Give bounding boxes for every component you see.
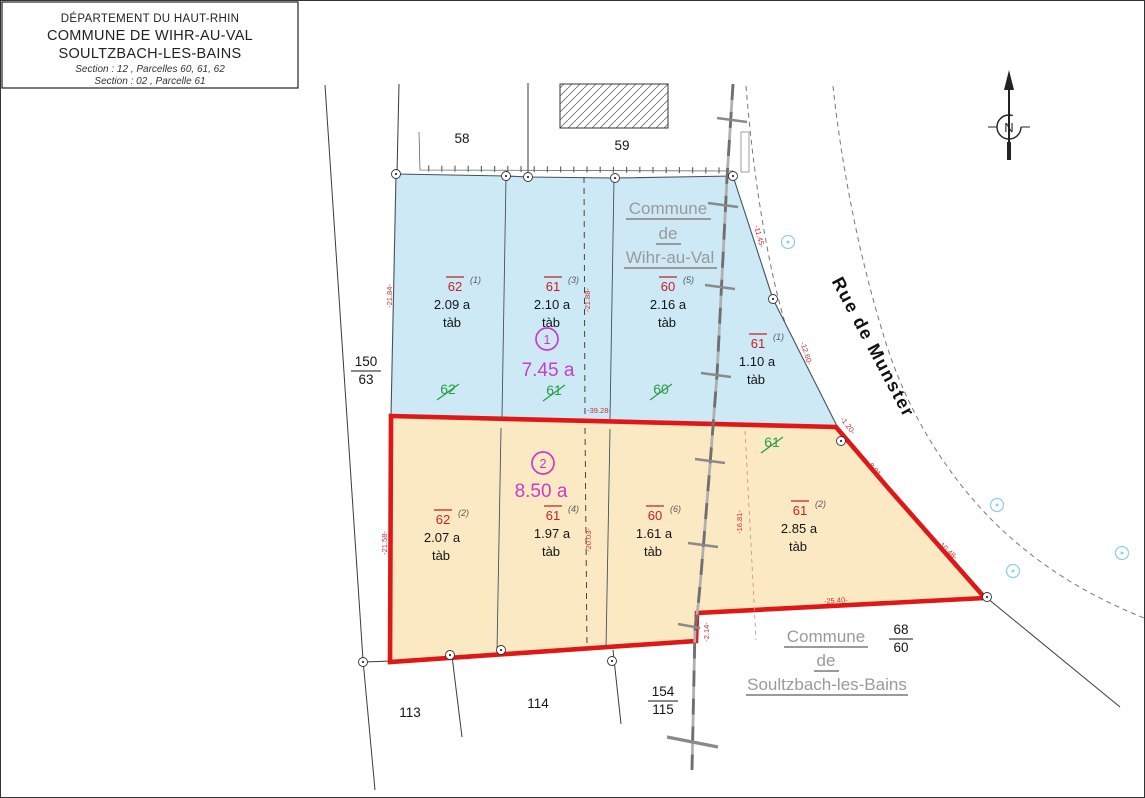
parcel-area: 2.16 a bbox=[650, 297, 687, 312]
measurement: -25.40- bbox=[824, 595, 849, 606]
survey-point bbox=[502, 172, 511, 181]
survey-point bbox=[524, 173, 533, 182]
soultzbach-line2: de bbox=[817, 651, 836, 670]
parcel-note: tàb bbox=[443, 315, 461, 330]
cadastral-map: N DÉPARTEMENT DU HAUT-RHIN COMMUNE DE WI… bbox=[0, 0, 1145, 798]
zone2-number: 2 bbox=[539, 456, 546, 471]
survey-point bbox=[837, 437, 846, 446]
fraction-top: 68 bbox=[893, 622, 908, 637]
parcel-note: tàb bbox=[644, 544, 662, 559]
parcel-number: 62 bbox=[436, 512, 450, 527]
parcel-number: 61 bbox=[793, 503, 807, 518]
parcel-exponent: (2) bbox=[815, 499, 826, 509]
zone2-area: 8.50 a bbox=[515, 481, 568, 502]
parcel-note: tàb bbox=[789, 539, 807, 554]
measurement: -2.14- bbox=[702, 622, 711, 642]
fraction-bottom: 115 bbox=[652, 702, 674, 717]
fraction-bottom: 63 bbox=[358, 372, 373, 387]
fraction-bottom: 60 bbox=[893, 640, 908, 655]
soultzbach-line3: Soultzbach-les-Bains bbox=[747, 675, 907, 694]
survey-point bbox=[392, 170, 401, 179]
parcel-exponent: (1) bbox=[773, 332, 784, 342]
measurement: -21.88- bbox=[583, 288, 592, 312]
old-number-61b: 61 bbox=[764, 434, 780, 450]
adjacent-parcel-59: 59 bbox=[614, 138, 629, 153]
north-label: N bbox=[1004, 120, 1013, 135]
parcel-exponent: (2) bbox=[458, 508, 469, 518]
wihr-line2: de bbox=[659, 224, 678, 243]
small-enclosure bbox=[741, 132, 749, 172]
parcel-area: 2.85 a bbox=[781, 521, 818, 536]
title-commune-2: SOULTZBACH-LES-BAINS bbox=[59, 46, 242, 62]
adjacent-parcel-113: 113 bbox=[399, 705, 421, 720]
adjacent-parcel-58: 58 bbox=[454, 131, 469, 146]
parcel-exponent: (4) bbox=[568, 504, 579, 514]
title-block: DÉPARTEMENT DU HAUT-RHIN COMMUNE DE WIHR… bbox=[2, 2, 298, 88]
parcel-area: 1.61 a bbox=[636, 526, 673, 541]
parcel-note: tàb bbox=[432, 548, 450, 563]
survey-point bbox=[497, 646, 506, 655]
parcel-exponent: (3) bbox=[568, 275, 579, 285]
parcel-number: 60 bbox=[661, 279, 675, 294]
parcel-number: 61 bbox=[546, 508, 560, 523]
parcel-area: 1.10 a bbox=[739, 354, 776, 369]
wihr-line1: Commune bbox=[629, 199, 707, 218]
survey-point bbox=[359, 658, 368, 667]
measurement: -16.81- bbox=[735, 510, 744, 534]
parcel-area: 2.07 a bbox=[424, 530, 461, 545]
parcel-exponent: (5) bbox=[683, 275, 694, 285]
cadastral-plan-page: N DÉPARTEMENT DU HAUT-RHIN COMMUNE DE WI… bbox=[0, 0, 1145, 798]
measurement: -21.84- bbox=[385, 284, 394, 308]
title-department: DÉPARTEMENT DU HAUT-RHIN bbox=[61, 12, 239, 25]
parcel-exponent: (1) bbox=[470, 275, 481, 285]
survey-point bbox=[611, 174, 620, 183]
zone1-number: 1 bbox=[543, 332, 550, 347]
parcel-number: 60 bbox=[648, 508, 662, 523]
adjacent-parcel-114: 114 bbox=[527, 696, 549, 711]
fraction-top: 154 bbox=[652, 684, 675, 699]
measurement: -21.58- bbox=[380, 531, 389, 555]
survey-point bbox=[729, 172, 738, 181]
parcel-note: tàb bbox=[542, 544, 560, 559]
title-section-2: Section : 02 , Parcelle 61 bbox=[94, 76, 205, 87]
measurement: -39.28- bbox=[587, 406, 611, 415]
building-hatched bbox=[560, 84, 668, 128]
fraction-top: 150 bbox=[355, 354, 378, 369]
parcel-note: tàb bbox=[747, 372, 765, 387]
parcel-note: tàb bbox=[542, 315, 560, 330]
parcel-number: 62 bbox=[448, 279, 462, 294]
parcel-area: 2.09 a bbox=[434, 297, 471, 312]
title-commune-1: COMMUNE DE WIHR-AU-VAL bbox=[47, 28, 253, 44]
survey-point bbox=[446, 651, 455, 660]
parcel-number: 61 bbox=[546, 279, 560, 294]
survey-point bbox=[769, 295, 778, 304]
parcel-area: 1.97 a bbox=[534, 526, 571, 541]
old-number-60: 60 bbox=[653, 381, 669, 397]
parcel-note: tàb bbox=[658, 315, 676, 330]
wihr-line3: Wihr-au-Val bbox=[626, 248, 714, 267]
title-section-1: Section : 12 , Parcelles 60, 61, 62 bbox=[75, 64, 225, 75]
survey-point bbox=[608, 657, 617, 666]
survey-point bbox=[983, 593, 992, 602]
zone1-area: 7.45 a bbox=[522, 360, 575, 381]
old-number-61: 61 bbox=[546, 382, 562, 398]
old-number-62: 62 bbox=[440, 381, 456, 397]
parcel-number: 61 bbox=[751, 336, 765, 351]
fraction-154-115: 154 115 bbox=[648, 684, 678, 717]
soultzbach-line1: Commune bbox=[787, 627, 865, 646]
measurement: -20.03- bbox=[584, 528, 593, 552]
parcel-exponent: (6) bbox=[670, 504, 681, 514]
parcel-area: 2.10 a bbox=[534, 297, 571, 312]
